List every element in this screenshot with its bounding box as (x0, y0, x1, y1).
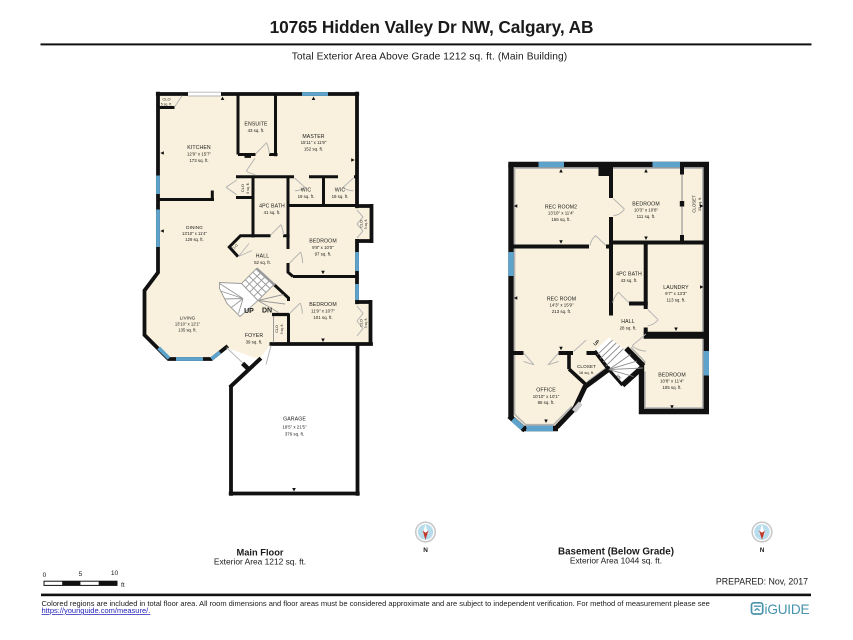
svg-text:14'3" x 15'9": 14'3" x 15'9" (549, 303, 574, 308)
svg-text:33 sq. ft.: 33 sq. ft. (698, 197, 702, 212)
svg-text:16 sq. ft.: 16 sq. ft. (579, 370, 594, 375)
svg-text:10765 Hidden Valley Dr NW, Cal: 10765 Hidden Valley Dr NW, Calgary, AB (270, 17, 594, 37)
svg-text:HALL: HALL (621, 319, 634, 325)
svg-text:Exterior Area 1212 sq. ft.: Exterior Area 1212 sq. ft. (214, 557, 306, 567)
svg-text:213 sq. ft.: 213 sq. ft. (552, 309, 571, 314)
svg-text:CLO: CLO (360, 220, 364, 228)
svg-text:3 sq. ft.: 3 sq. ft. (364, 318, 368, 329)
svg-text:PREPARED: Nov, 2017: PREPARED: Nov, 2017 (716, 577, 808, 587)
svg-text:6 sq. ft.: 6 sq. ft. (246, 182, 250, 193)
svg-text:FOYER: FOYER (245, 333, 264, 339)
svg-text:Total Exterior Area Above Grad: Total Exterior Area Above Grade 1212 sq.… (292, 52, 568, 63)
svg-text:105 sq. ft.: 105 sq. ft. (662, 385, 681, 390)
svg-text:N: N (423, 547, 428, 554)
svg-text:13'10" x 11'4": 13'10" x 11'4" (182, 231, 207, 236)
svg-text:3 sq. ft.: 3 sq. ft. (364, 219, 368, 230)
svg-text:15'11" x 11'9": 15'11" x 11'9" (301, 140, 327, 145)
svg-text:10: 10 (111, 570, 119, 577)
svg-text:DN: DN (262, 307, 272, 314)
svg-text:5 sq. ft.: 5 sq. ft. (161, 102, 173, 106)
svg-text:19 sq. ft.: 19 sq. ft. (332, 194, 349, 199)
svg-text:9 sq. ft.: 9 sq. ft. (280, 324, 284, 335)
svg-text:52 sq. ft.: 52 sq. ft. (254, 260, 271, 265)
svg-text:MASTER: MASTER (302, 134, 324, 140)
svg-text:9'7" x 13'3": 9'7" x 13'3" (665, 291, 687, 296)
svg-text:10'3" x 10'8": 10'3" x 10'8" (634, 208, 659, 213)
svg-text:CLO: CLO (360, 319, 364, 327)
svg-text:13'10" x 12'1": 13'10" x 12'1" (175, 322, 201, 327)
svg-text:97 sq. ft.: 97 sq. ft. (315, 251, 332, 256)
svg-text:CLOSET: CLOSET (577, 364, 596, 369)
svg-text:152 sq. ft.: 152 sq. ft. (304, 146, 323, 151)
svg-text:BEDROOM: BEDROOM (309, 302, 337, 308)
svg-text:DINING: DINING (186, 225, 203, 230)
svg-text:5: 5 (79, 571, 83, 578)
svg-text:BEDROOM: BEDROOM (309, 239, 337, 245)
svg-text:WIC: WIC (335, 188, 346, 194)
svg-text:BEDROOM: BEDROOM (658, 373, 686, 379)
svg-text:86 sq. ft.: 86 sq. ft. (538, 400, 555, 405)
svg-text:UP: UP (244, 308, 254, 315)
svg-text:https://youriguide.com/measure: https://youriguide.com/measure/. (42, 606, 151, 615)
svg-text:LIVING: LIVING (180, 316, 196, 321)
svg-text:43 sq. ft.: 43 sq. ft. (248, 128, 265, 133)
svg-text:LAUNDRY: LAUNDRY (663, 285, 689, 291)
svg-text:BEDROOM: BEDROOM (632, 202, 660, 208)
svg-text:CLO: CLO (275, 325, 279, 333)
svg-text:CLOSET: CLOSET (692, 195, 697, 213)
svg-text:155 sq. ft.: 155 sq. ft. (551, 217, 570, 222)
svg-text:CLO: CLO (162, 97, 170, 102)
svg-text:10'8" x 11'4": 10'8" x 11'4" (660, 379, 684, 384)
svg-text:129 sq. ft.: 129 sq. ft. (185, 237, 203, 242)
svg-text:OFFICE: OFFICE (536, 388, 556, 394)
svg-text:ft: ft (121, 582, 125, 589)
svg-text:REC ROOM: REC ROOM (547, 297, 576, 303)
svg-text:11'9" x 10'7": 11'9" x 10'7" (311, 309, 335, 314)
svg-text:41 sq. ft.: 41 sq. ft. (264, 210, 281, 215)
svg-text:0: 0 (43, 572, 47, 579)
svg-text:KITCHEN: KITCHEN (187, 145, 211, 151)
svg-text:Exterior Area 1044 sq. ft.: Exterior Area 1044 sq. ft. (570, 556, 662, 566)
svg-text:28 sq. ft.: 28 sq. ft. (620, 325, 637, 330)
svg-text:N: N (760, 547, 765, 554)
svg-text:173 sq. ft.: 173 sq. ft. (189, 158, 208, 163)
svg-text:HALL: HALL (256, 254, 269, 260)
svg-text:CLO: CLO (240, 184, 245, 192)
svg-text:9'8" x 10'0": 9'8" x 10'0" (312, 245, 334, 250)
svg-text:111 sq. ft.: 111 sq. ft. (637, 214, 656, 219)
svg-text:REC ROOM2: REC ROOM2 (545, 205, 577, 211)
svg-text:4PC BATH: 4PC BATH (259, 204, 285, 210)
svg-text:39 sq. ft.: 39 sq. ft. (246, 340, 263, 345)
svg-text:19 sq. ft.: 19 sq. ft. (298, 194, 315, 199)
svg-text:376 sq. ft.: 376 sq. ft. (285, 432, 304, 437)
svg-text:113 sq. ft.: 113 sq. ft. (667, 297, 686, 302)
svg-text:18'5" x 21'5": 18'5" x 21'5" (282, 425, 307, 430)
svg-text:GARAGE: GARAGE (283, 417, 306, 423)
svg-text:ENSUITE: ENSUITE (244, 122, 268, 128)
svg-text:4PC BATH: 4PC BATH (616, 272, 642, 278)
svg-text:WIC: WIC (301, 188, 312, 194)
svg-text:43 sq. ft.: 43 sq. ft. (621, 278, 638, 283)
svg-text:135 sq. ft.: 135 sq. ft. (178, 328, 196, 333)
svg-text:13'10" x 11'4": 13'10" x 11'4" (548, 211, 575, 216)
svg-text:12'9" x 15'7": 12'9" x 15'7" (187, 152, 212, 157)
svg-text:101 sq. ft.: 101 sq. ft. (313, 315, 332, 320)
svg-text:10'10" x 10'1": 10'10" x 10'1" (533, 394, 560, 399)
svg-text:iGUIDE: iGUIDE (765, 602, 810, 617)
